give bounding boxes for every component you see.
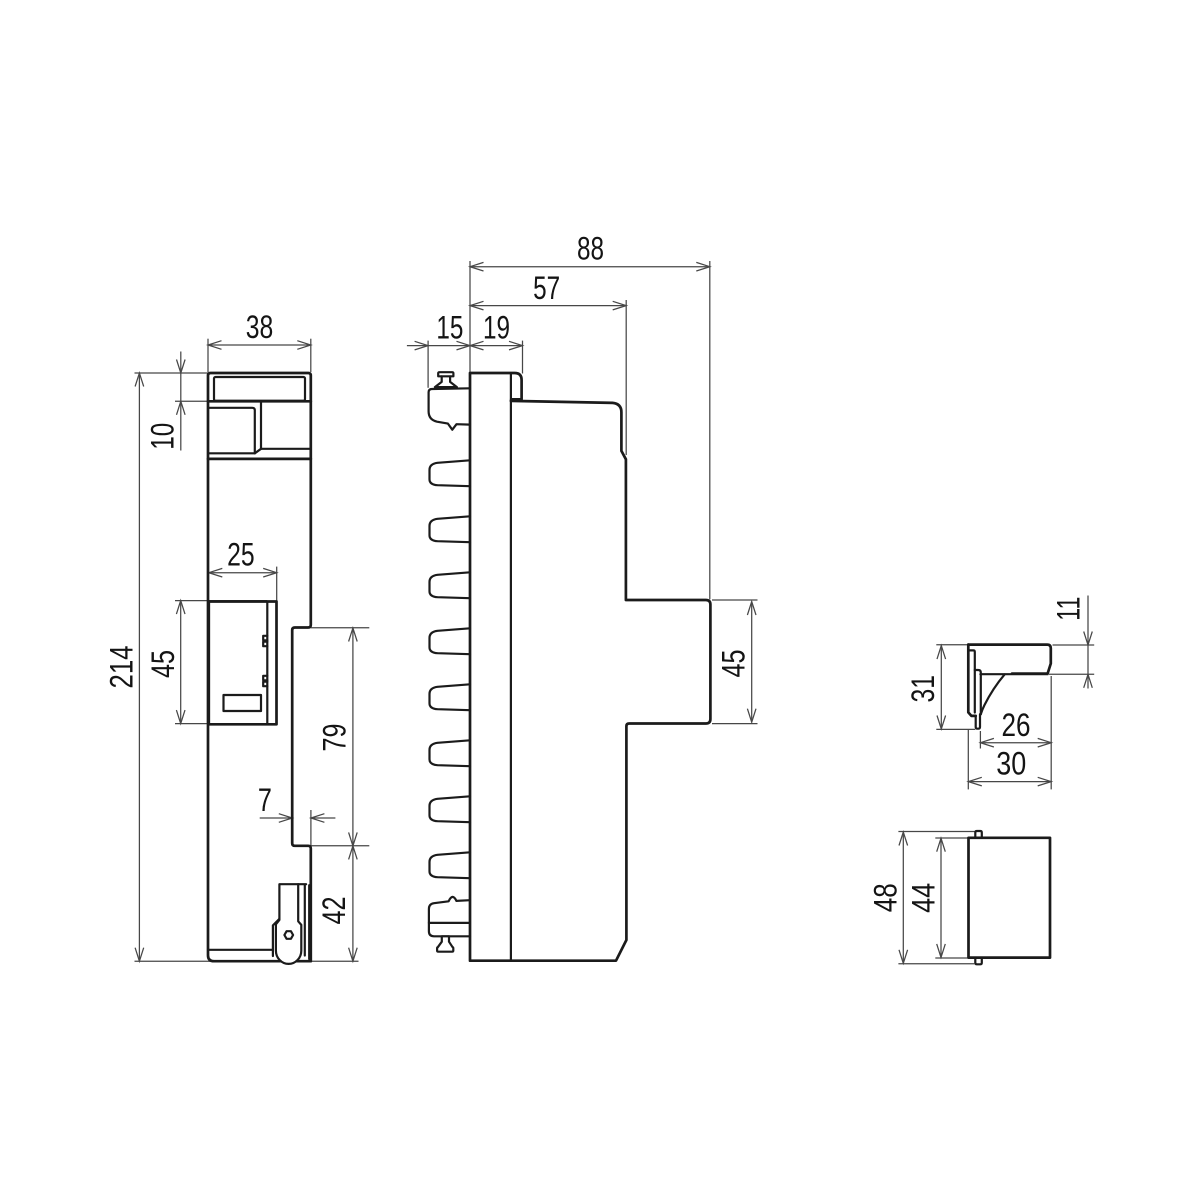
svg-text:57: 57 — [533, 270, 560, 306]
svg-text:19: 19 — [483, 310, 510, 346]
svg-text:214: 214 — [103, 646, 139, 689]
svg-text:45: 45 — [715, 650, 751, 678]
svg-text:44: 44 — [905, 883, 941, 913]
svg-text:10: 10 — [145, 423, 181, 450]
svg-text:88: 88 — [577, 231, 604, 267]
svg-text:38: 38 — [246, 309, 274, 345]
svg-text:11: 11 — [1051, 597, 1087, 621]
svg-text:45: 45 — [145, 650, 181, 678]
svg-text:30: 30 — [996, 746, 1026, 782]
svg-text:26: 26 — [1002, 707, 1031, 743]
svg-text:48: 48 — [868, 883, 904, 912]
svg-text:7: 7 — [258, 782, 272, 818]
svg-text:25: 25 — [227, 537, 255, 573]
svg-text:31: 31 — [905, 675, 941, 703]
svg-text:79: 79 — [316, 724, 352, 752]
svg-text:15: 15 — [436, 310, 463, 346]
svg-text:42: 42 — [316, 897, 352, 925]
